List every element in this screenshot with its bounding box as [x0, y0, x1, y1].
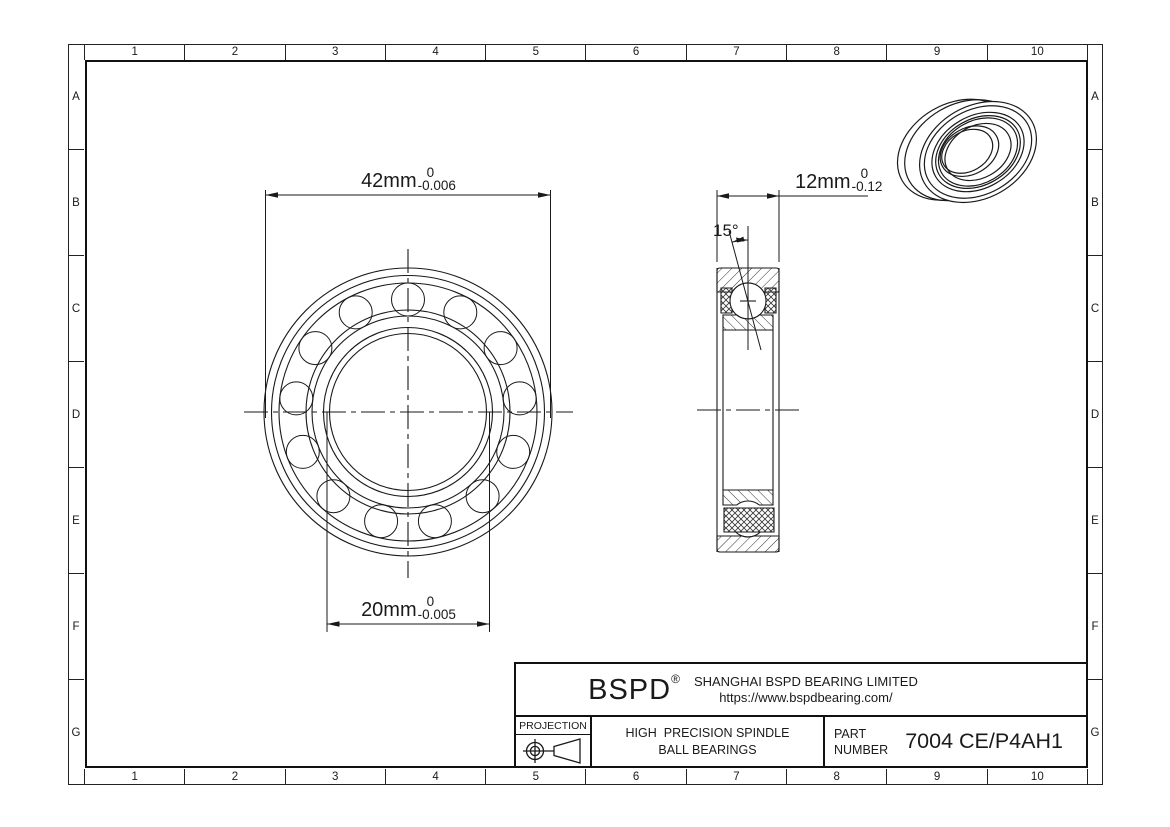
part-label-line-1: PART	[834, 726, 888, 742]
title-block: BSPD ® SHANGHAI BSPD BEARING LIMITED htt…	[514, 662, 1088, 768]
company-name: SHANGHAI BSPD BEARING LIMITED	[694, 674, 918, 690]
drawing-sheet: 1 2 3 4 5 6 7 8 9 10 1 2 3 4 5 6 7 8 9 1…	[0, 0, 1170, 827]
outer-ring-section-bottom	[717, 536, 779, 552]
title-block-lower-row: PROJECTION HIGH PRECISION SPINDLE BALL B…	[516, 715, 1086, 766]
product-line-1: HIGH PRECISION SPINDLE	[626, 725, 790, 742]
section-view	[697, 190, 868, 552]
company-website: https://www.bspdbearing.com/	[694, 690, 918, 706]
third-angle-projection-icon	[521, 736, 585, 766]
inner-ring-section-bottom	[723, 490, 773, 505]
dim-value: 12mm	[795, 171, 851, 193]
part-number-cell: PART NUMBER 7004 CE/P4AH1	[825, 717, 1086, 766]
tolerance-lower: -0.006	[418, 179, 456, 192]
product-line-2: BALL BEARINGS	[658, 742, 756, 759]
part-label-line-2: NUMBER	[834, 742, 888, 758]
dim-label-width: 12mm 0 -0.12	[795, 167, 882, 193]
registered-trademark-icon: ®	[671, 673, 680, 685]
bspd-logo: BSPD ®	[588, 675, 680, 705]
cage-section-right	[765, 288, 776, 313]
projection-cell: PROJECTION	[516, 717, 592, 766]
contact-angle-label: 15°	[713, 221, 739, 241]
cage-section-bottom	[724, 508, 774, 532]
dim-12mm-lines	[717, 190, 868, 262]
dim-value: 42mm	[361, 170, 417, 192]
tolerance-lower: -0.12	[852, 180, 883, 193]
product-description-cell: HIGH PRECISION SPINDLE BALL BEARINGS	[592, 717, 825, 766]
front-view	[244, 190, 573, 632]
projection-label: PROJECTION	[516, 717, 590, 735]
dim-value: 20mm	[361, 599, 417, 621]
part-number-value: 7004 CE/P4AH1	[888, 729, 1086, 754]
tolerance-lower: -0.005	[418, 608, 456, 621]
title-block-header: BSPD ® SHANGHAI BSPD BEARING LIMITED htt…	[516, 664, 1086, 715]
iso-3d-bearing-view	[879, 70, 1054, 232]
dim-label-bore-diameter: 20mm 0 -0.005	[330, 595, 487, 621]
dim-label-outer-diameter: 42mm 0 -0.006	[330, 166, 487, 192]
